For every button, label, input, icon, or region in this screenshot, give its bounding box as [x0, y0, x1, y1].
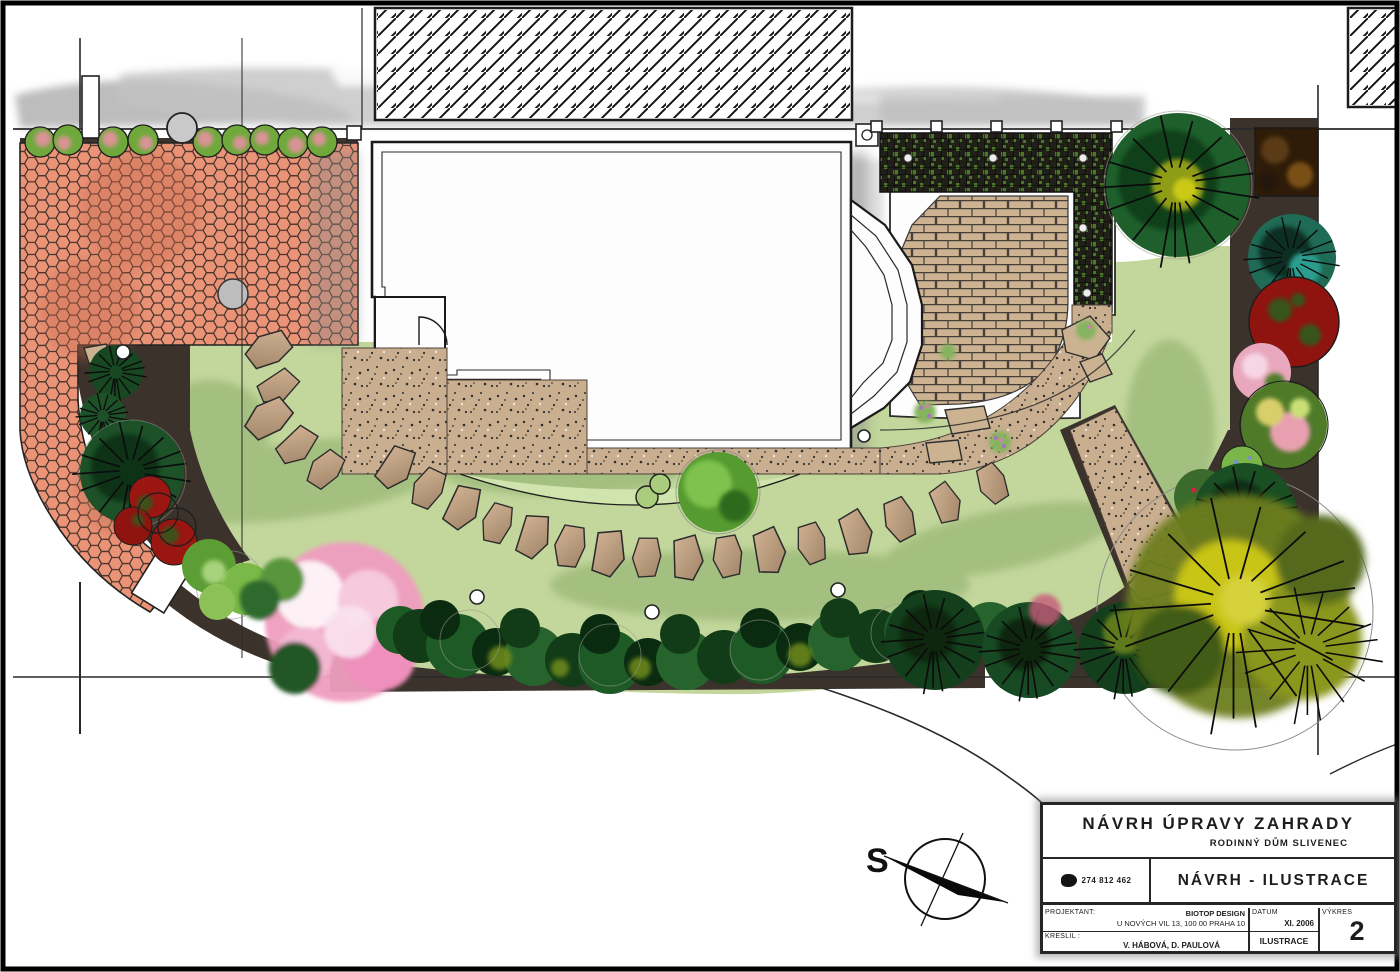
compass-label: S: [866, 842, 889, 880]
logo-cell: 274 812 462: [1043, 859, 1151, 902]
existing-tree-trunk: [167, 113, 197, 143]
category-value: ILUSTRACE: [1250, 936, 1318, 946]
neighbor-building-north: [375, 8, 852, 120]
title-block-header: NÁVRH ÚPRAVY ZAHRADY RODINNÝ DŮM SLIVENE…: [1043, 805, 1394, 859]
kreslil-label: KRESLIL :: [1045, 933, 1080, 940]
road-curve: [822, 688, 1042, 803]
company-logo-icon: [1061, 874, 1077, 887]
vykres-cell: VÝKRES 2: [1320, 908, 1394, 954]
vykres-label: VÝKRES: [1322, 909, 1352, 916]
drawing-title: NÁVRH ÚPRAVY ZAHRADY: [1043, 814, 1394, 834]
datum-label: DATUM: [1252, 909, 1278, 916]
title-block-info-row: PROJEKTANT: BIOTOP DESIGN U NOVÝCH VIL 1…: [1043, 908, 1394, 954]
drawing-name-cell: NÁVRH - ILUSTRACE: [1153, 859, 1394, 902]
datum-cell: DATUM XI. 2006 ILUSTRACE: [1250, 908, 1320, 954]
drawing-subtitle: RODINNÝ DŮM SLIVENEC: [1210, 838, 1348, 849]
compost-area: [1255, 128, 1318, 196]
company-phone: 274 812 462: [1082, 876, 1132, 885]
drawing-name: NÁVRH - ILUSTRACE: [1178, 872, 1370, 890]
projektant-label: PROJEKTANT:: [1045, 909, 1095, 916]
manhole: [218, 279, 248, 309]
title-block-name-row: 274 812 462 NÁVRH - ILUSTRACE: [1043, 859, 1394, 905]
kreslil-value: V. HÁBOVÁ, D. PAULOVÁ: [1123, 941, 1220, 950]
projektant-address: U NOVÝCH VIL 13, 100 00 PRAHA 10: [1117, 919, 1245, 928]
datum-value: XI. 2006: [1284, 919, 1314, 928]
projektant-firm: BIOTOP DESIGN: [1186, 909, 1245, 918]
neighbor-building-northeast: [1348, 8, 1397, 107]
compass: S: [866, 833, 1008, 926]
title-block: NÁVRH ÚPRAVY ZAHRADY RODINNÝ DŮM SLIVENE…: [1040, 802, 1397, 954]
projektant-cell: PROJEKTANT: BIOTOP DESIGN U NOVÝCH VIL 1…: [1043, 908, 1250, 954]
garden-plan-sheet: S NÁVRH ÚPRAVY ZAHRADY RODINNÝ DŮM SLIVE…: [0, 0, 1400, 972]
road-curve-east: [1330, 744, 1397, 774]
vykres-number: 2: [1320, 916, 1394, 947]
